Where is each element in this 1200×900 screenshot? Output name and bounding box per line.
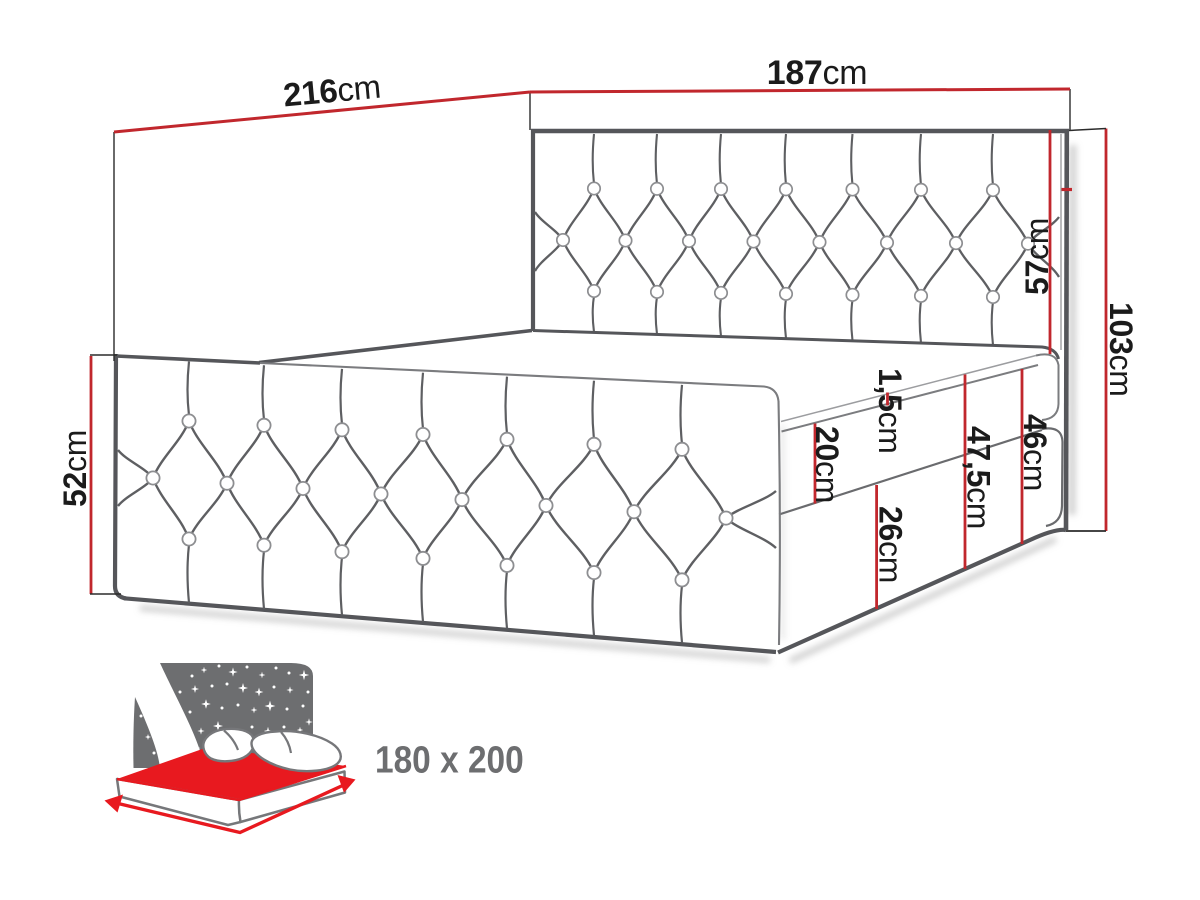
svg-text:187cm: 187cm (767, 54, 868, 92)
svg-text:103cm: 103cm (1103, 302, 1139, 397)
svg-text:26cm: 26cm (873, 506, 909, 583)
svg-text:20cm: 20cm (809, 426, 845, 503)
svg-text:180 x 200: 180 x 200 (375, 739, 524, 781)
svg-text:46cm: 46cm (1017, 414, 1053, 491)
svg-text:47,5cm: 47,5cm (961, 426, 997, 529)
svg-text:1,5cm: 1,5cm (872, 368, 908, 454)
svg-text:52cm: 52cm (57, 430, 93, 507)
svg-text:57cm: 57cm (1019, 218, 1055, 295)
